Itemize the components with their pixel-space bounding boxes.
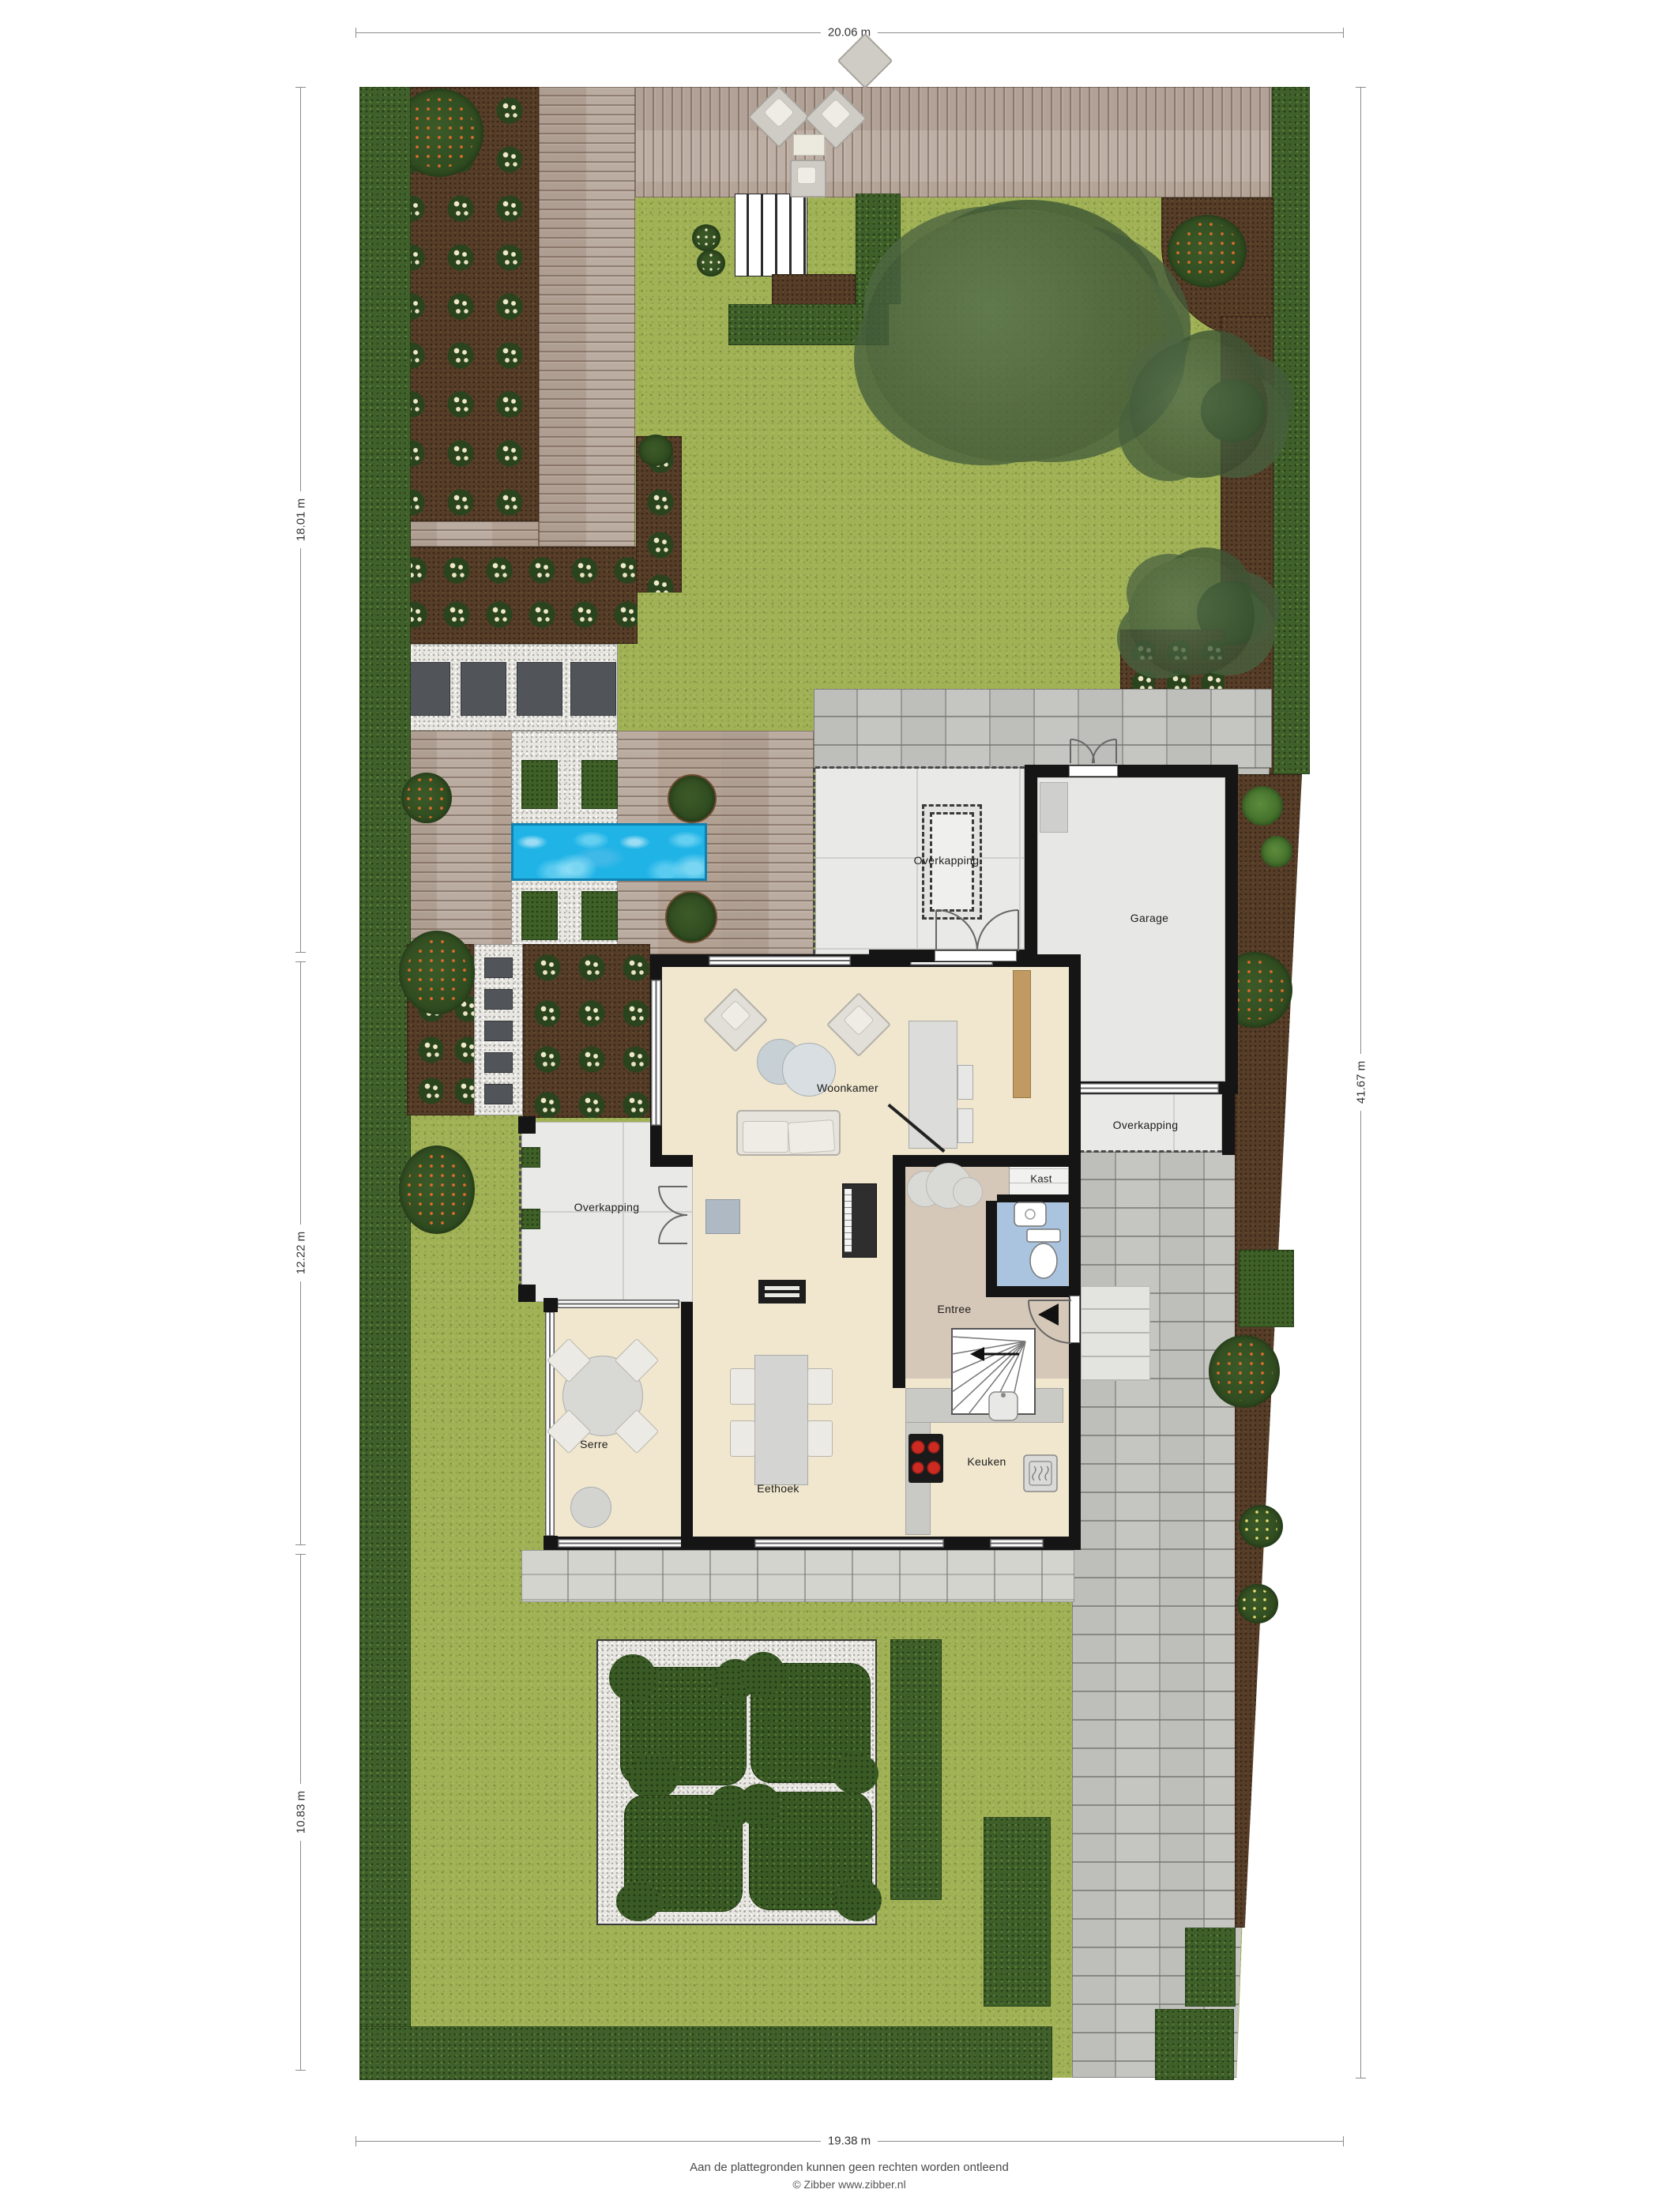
flower-bush-2 bbox=[697, 250, 725, 276]
flower-bush-1 bbox=[692, 224, 720, 251]
window-serre-north bbox=[557, 1300, 679, 1308]
flower-bed-before-house-plants bbox=[523, 944, 650, 1118]
cooktop bbox=[908, 1434, 943, 1483]
deck-terrace-top bbox=[635, 87, 1272, 197]
kitchen-counter-top bbox=[905, 1388, 1063, 1423]
footer-disclaimer: Aan de plattegronden kunnen geen rechten… bbox=[690, 2161, 1009, 2174]
label-carport: Overkapping bbox=[914, 854, 980, 867]
shrub-bed-lawn-edge bbox=[638, 434, 673, 466]
site-plan-canvas: 20.06 m 19.38 m 18.01 m 12.22 m 10.83 m … bbox=[0, 0, 1659, 2212]
wall-east-upper bbox=[1069, 954, 1081, 1167]
wall-toilet-west bbox=[986, 1201, 997, 1297]
carport-dashed-top bbox=[815, 766, 1025, 769]
serre-pouf bbox=[570, 1487, 611, 1528]
label-serre: Serre bbox=[580, 1438, 608, 1450]
label-kast: Kast bbox=[1030, 1173, 1051, 1185]
mini-hedge-2 bbox=[581, 760, 618, 809]
lounge-table bbox=[793, 134, 825, 156]
dim-left-tick-1 bbox=[295, 87, 306, 88]
carport-dashed-left bbox=[813, 768, 816, 954]
deck-terrace-left bbox=[539, 87, 635, 547]
terrace-steps bbox=[735, 194, 807, 276]
lounge-chair-top bbox=[837, 33, 893, 89]
label-garage: Garage bbox=[1130, 912, 1169, 924]
stepping-paver-1 bbox=[404, 662, 450, 716]
dim-right-label: 41.67 m bbox=[1355, 1054, 1368, 1111]
wall-toilet-south bbox=[986, 1286, 1071, 1297]
sofa bbox=[736, 1110, 841, 1156]
dim-bottom-tick-left bbox=[355, 2136, 356, 2146]
mid-paver-3 bbox=[484, 1021, 513, 1041]
dim-top-tick-left bbox=[355, 28, 356, 38]
flower-bed-before-house bbox=[523, 944, 650, 1118]
flower-tuft-driveway-2 bbox=[1237, 1584, 1278, 1623]
berry-shrub-midleft bbox=[399, 931, 475, 1014]
wall-entree-north bbox=[905, 1155, 1081, 1167]
wood-panel bbox=[1013, 970, 1031, 1098]
hedge-bottom-right-1 bbox=[1185, 1928, 1236, 2007]
garden-tree-right-1 bbox=[1130, 340, 1268, 478]
dining-chair-1 bbox=[730, 1368, 755, 1405]
berry-shrub-driveway-2 bbox=[1209, 1335, 1280, 1408]
overkapping-left-planter-2 bbox=[521, 1209, 540, 1229]
stepping-paver-3 bbox=[517, 662, 562, 716]
sideboard-eethoek bbox=[705, 1199, 740, 1234]
overkapping-right-dashed-bottom bbox=[1072, 1150, 1222, 1153]
hedge-bottom-boundary bbox=[359, 2026, 1052, 2080]
grass-tuft-right-1 bbox=[1242, 786, 1283, 826]
stepping-paver-4 bbox=[570, 662, 616, 716]
flower-bed-strip-plants bbox=[389, 547, 638, 644]
mini-hedge-3 bbox=[521, 891, 558, 940]
deck-tree-1 bbox=[668, 774, 717, 823]
mid-paver-5 bbox=[484, 1084, 513, 1104]
driveway-entrance bbox=[814, 689, 1272, 768]
front-door-opening bbox=[1070, 1296, 1080, 1343]
swimming-pool bbox=[511, 823, 707, 881]
garage-door-opening bbox=[1069, 766, 1118, 777]
planter-4 bbox=[749, 1792, 872, 1910]
path-south-of-house bbox=[521, 1550, 1074, 1602]
wall-entree-west bbox=[893, 1155, 905, 1388]
dim-bottom-label: 19.38 m bbox=[821, 2135, 878, 2148]
planter-1 bbox=[620, 1667, 747, 1785]
mid-paver-4 bbox=[484, 1052, 513, 1073]
label-keuken: Keuken bbox=[967, 1455, 1006, 1468]
soil-patch-below-steps bbox=[772, 274, 856, 306]
overkapping-right-wall bbox=[1222, 1094, 1235, 1155]
mini-hedge-4 bbox=[581, 891, 618, 940]
overkapping-left-post-2 bbox=[518, 1285, 536, 1302]
deck-strip-below-bed bbox=[389, 521, 539, 547]
floor-woonkamer bbox=[662, 967, 1069, 1167]
hedge-column-right-of-garden bbox=[890, 1639, 942, 1900]
window-south-serre bbox=[558, 1539, 683, 1548]
wall-shelf-2 bbox=[957, 1108, 973, 1143]
dim-left-tick-6 bbox=[295, 2070, 306, 2071]
overkapping-left-planter-1 bbox=[521, 1147, 540, 1168]
stepping-paver-2 bbox=[461, 662, 506, 716]
garden-tree-large bbox=[865, 209, 1165, 462]
dim-left-tick-2 bbox=[295, 952, 306, 953]
hedge-column-driveway-left bbox=[984, 1817, 1051, 2007]
dim-right-tick-bottom bbox=[1356, 2078, 1366, 2078]
dining-table bbox=[754, 1355, 808, 1485]
garage-south-sliding-door bbox=[1072, 1083, 1219, 1093]
window-north-1 bbox=[709, 956, 851, 965]
dim-bottom-tick-right bbox=[1343, 2136, 1344, 2146]
dim-top-tick-right bbox=[1343, 28, 1344, 38]
label-woonkamer: Woonkamer bbox=[817, 1082, 878, 1094]
label-overkapping-left: Overkapping bbox=[574, 1201, 640, 1213]
flower-bed-strip bbox=[389, 547, 638, 644]
label-eethoek: Eethoek bbox=[757, 1482, 799, 1495]
dim-left-tick-4 bbox=[295, 1544, 306, 1545]
planter-3 bbox=[624, 1795, 743, 1912]
dining-chair-4 bbox=[807, 1420, 833, 1457]
flower-tuft-driveway-1 bbox=[1239, 1505, 1283, 1548]
berry-shrub-right-1 bbox=[1168, 215, 1247, 288]
window-south-eethoek bbox=[754, 1539, 944, 1548]
dim-left-label-2: 12.22 m bbox=[295, 1224, 308, 1281]
berry-shrub-lawn-left-1 bbox=[401, 773, 452, 823]
planter-2 bbox=[750, 1663, 871, 1783]
hedge-right-top bbox=[1272, 87, 1310, 774]
hedge-bottom-right-2 bbox=[1155, 2009, 1234, 2080]
mid-paver-2 bbox=[484, 989, 513, 1010]
garage-storage-unit bbox=[1040, 782, 1068, 833]
dim-left-label-3: 10.83 m bbox=[295, 1784, 308, 1841]
berry-shrub-lawn-left-2 bbox=[399, 1145, 475, 1234]
dim-left-label-1: 18.01 m bbox=[295, 491, 308, 548]
front-entry-pad bbox=[1081, 1286, 1150, 1381]
wall-serre-east bbox=[681, 1302, 693, 1550]
dim-right-tick-top bbox=[1356, 87, 1366, 88]
dining-chair-3 bbox=[807, 1368, 833, 1405]
label-entree: Entree bbox=[937, 1303, 971, 1315]
deck-tree-2 bbox=[665, 891, 717, 943]
hedge-left-boundary bbox=[359, 87, 411, 2079]
mini-hedge-1 bbox=[521, 760, 558, 809]
mid-paver-1 bbox=[484, 957, 513, 978]
wall-serre-corner-nw bbox=[544, 1298, 558, 1312]
grass-tuft-right-2 bbox=[1261, 836, 1292, 867]
floor-toilet bbox=[997, 1201, 1068, 1286]
wall-shelf-1 bbox=[957, 1065, 973, 1100]
piano bbox=[842, 1183, 877, 1258]
coat-nook-blob-3 bbox=[953, 1177, 983, 1207]
dining-chair-2 bbox=[730, 1420, 755, 1457]
wall-east-lower bbox=[1069, 1167, 1081, 1550]
window-west bbox=[651, 980, 661, 1126]
wall-kast-toilet bbox=[997, 1194, 1069, 1202]
carport-door-opening bbox=[935, 950, 1017, 961]
footer-copyright: © Zibber www.zibber.nl bbox=[792, 2178, 905, 2191]
wall-woonkamer-sw bbox=[650, 1155, 693, 1167]
garden-tree-right-2 bbox=[1128, 557, 1255, 675]
lounge-chair-3 bbox=[790, 160, 826, 197]
wall-serre-corner-sw bbox=[544, 1536, 558, 1550]
window-south-keuken bbox=[990, 1539, 1044, 1548]
dim-left-tick-3 bbox=[295, 961, 306, 962]
dim-left-tick-5 bbox=[295, 1554, 306, 1555]
overkapping-left-post-1 bbox=[518, 1116, 536, 1134]
radiator bbox=[758, 1280, 806, 1303]
label-overkapping-right: Overkapping bbox=[1113, 1119, 1179, 1131]
hedge-block-driveway bbox=[1239, 1250, 1294, 1327]
